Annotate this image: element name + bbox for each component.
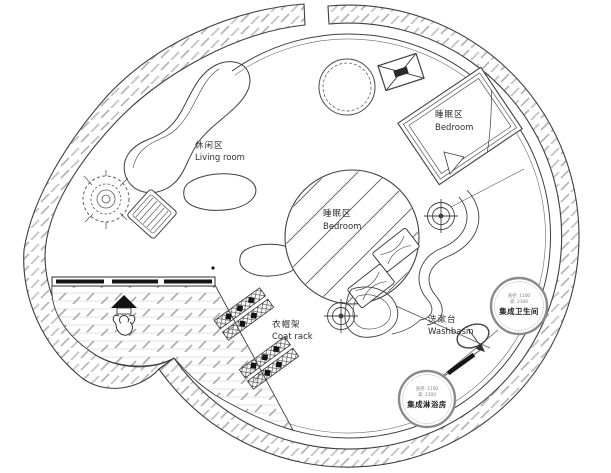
label-bedroom-center-zh: 睡眠区 [323, 209, 352, 219]
label-coat-rack-en: Coat rack [272, 332, 313, 342]
label-shower-name: 集成淋浴房 [406, 400, 446, 409]
armchair [127, 189, 178, 240]
label-living-room-en: Living room [195, 153, 245, 163]
label-bedroom-center-en: Bedroom [323, 222, 361, 232]
plant [83, 170, 129, 229]
label-coat-rack-zh: 衣帽架 [272, 319, 301, 330]
coffee-table [184, 174, 256, 211]
coat-rack-1 [214, 288, 273, 340]
bathroom-pod [491, 278, 547, 334]
shower-pod [399, 371, 455, 427]
label-shower-dim1: 直径: 1100 [416, 385, 439, 392]
terrace-wall [52, 277, 215, 286]
floor-plan-canvas: 休闲区 Living room 睡眠区 Bedroom 睡眠区 Bedroom … [0, 0, 611, 473]
floor-plan-drawing: 休闲区 Living room 睡眠区 Bedroom 睡眠区 Bedroom … [0, 0, 611, 473]
label-bathroom-name: 集成卫生间 [498, 307, 538, 316]
label-washbasin-en: Washbasin [428, 327, 474, 337]
label-bathroom-dim2: 高: 2100 [510, 298, 528, 305]
partition-lines [396, 169, 524, 391]
coat-rack-2 [239, 337, 298, 389]
round-table [319, 59, 375, 115]
door-panel [439, 348, 481, 380]
label-bathroom-dim1: 直径: 1100 [508, 292, 531, 299]
reference-dot [211, 266, 214, 269]
crosshair-symbol-1 [424, 199, 458, 233]
label-shower-dim2: 高: 2100 [418, 391, 436, 398]
label-washbasin-zh: 洗漱台 [428, 314, 457, 325]
label-bedroom-upper-zh: 睡眠区 [435, 110, 464, 120]
label-living-room-zh: 休闲区 [195, 140, 224, 151]
ac-unit-symbol [378, 53, 424, 90]
label-bedroom-upper-en: Bedroom [435, 123, 473, 133]
